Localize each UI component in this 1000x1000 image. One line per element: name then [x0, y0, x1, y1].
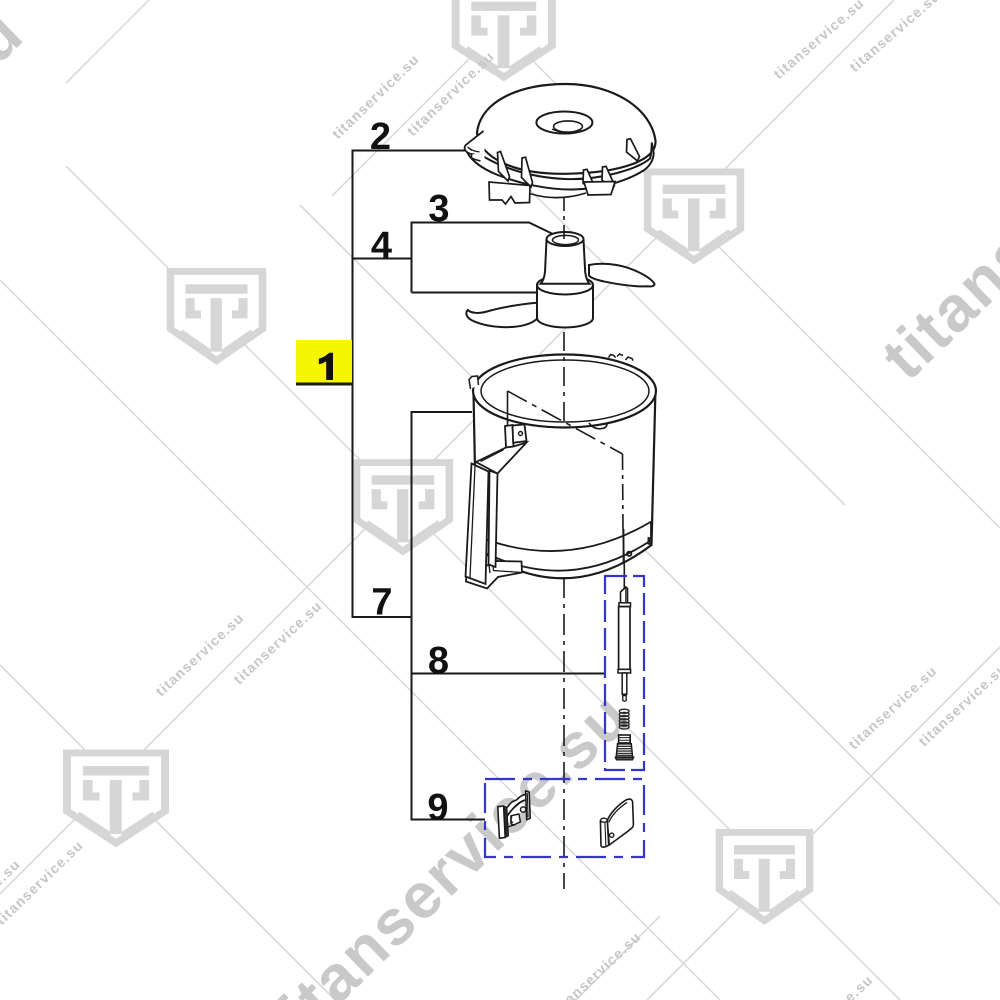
svg-text:9: 9 — [427, 787, 448, 829]
svg-text:7: 7 — [371, 582, 392, 624]
svg-text:3: 3 — [428, 188, 449, 230]
svg-text:8: 8 — [428, 640, 449, 682]
svg-text:2: 2 — [370, 116, 391, 158]
svg-text:4: 4 — [371, 225, 392, 267]
